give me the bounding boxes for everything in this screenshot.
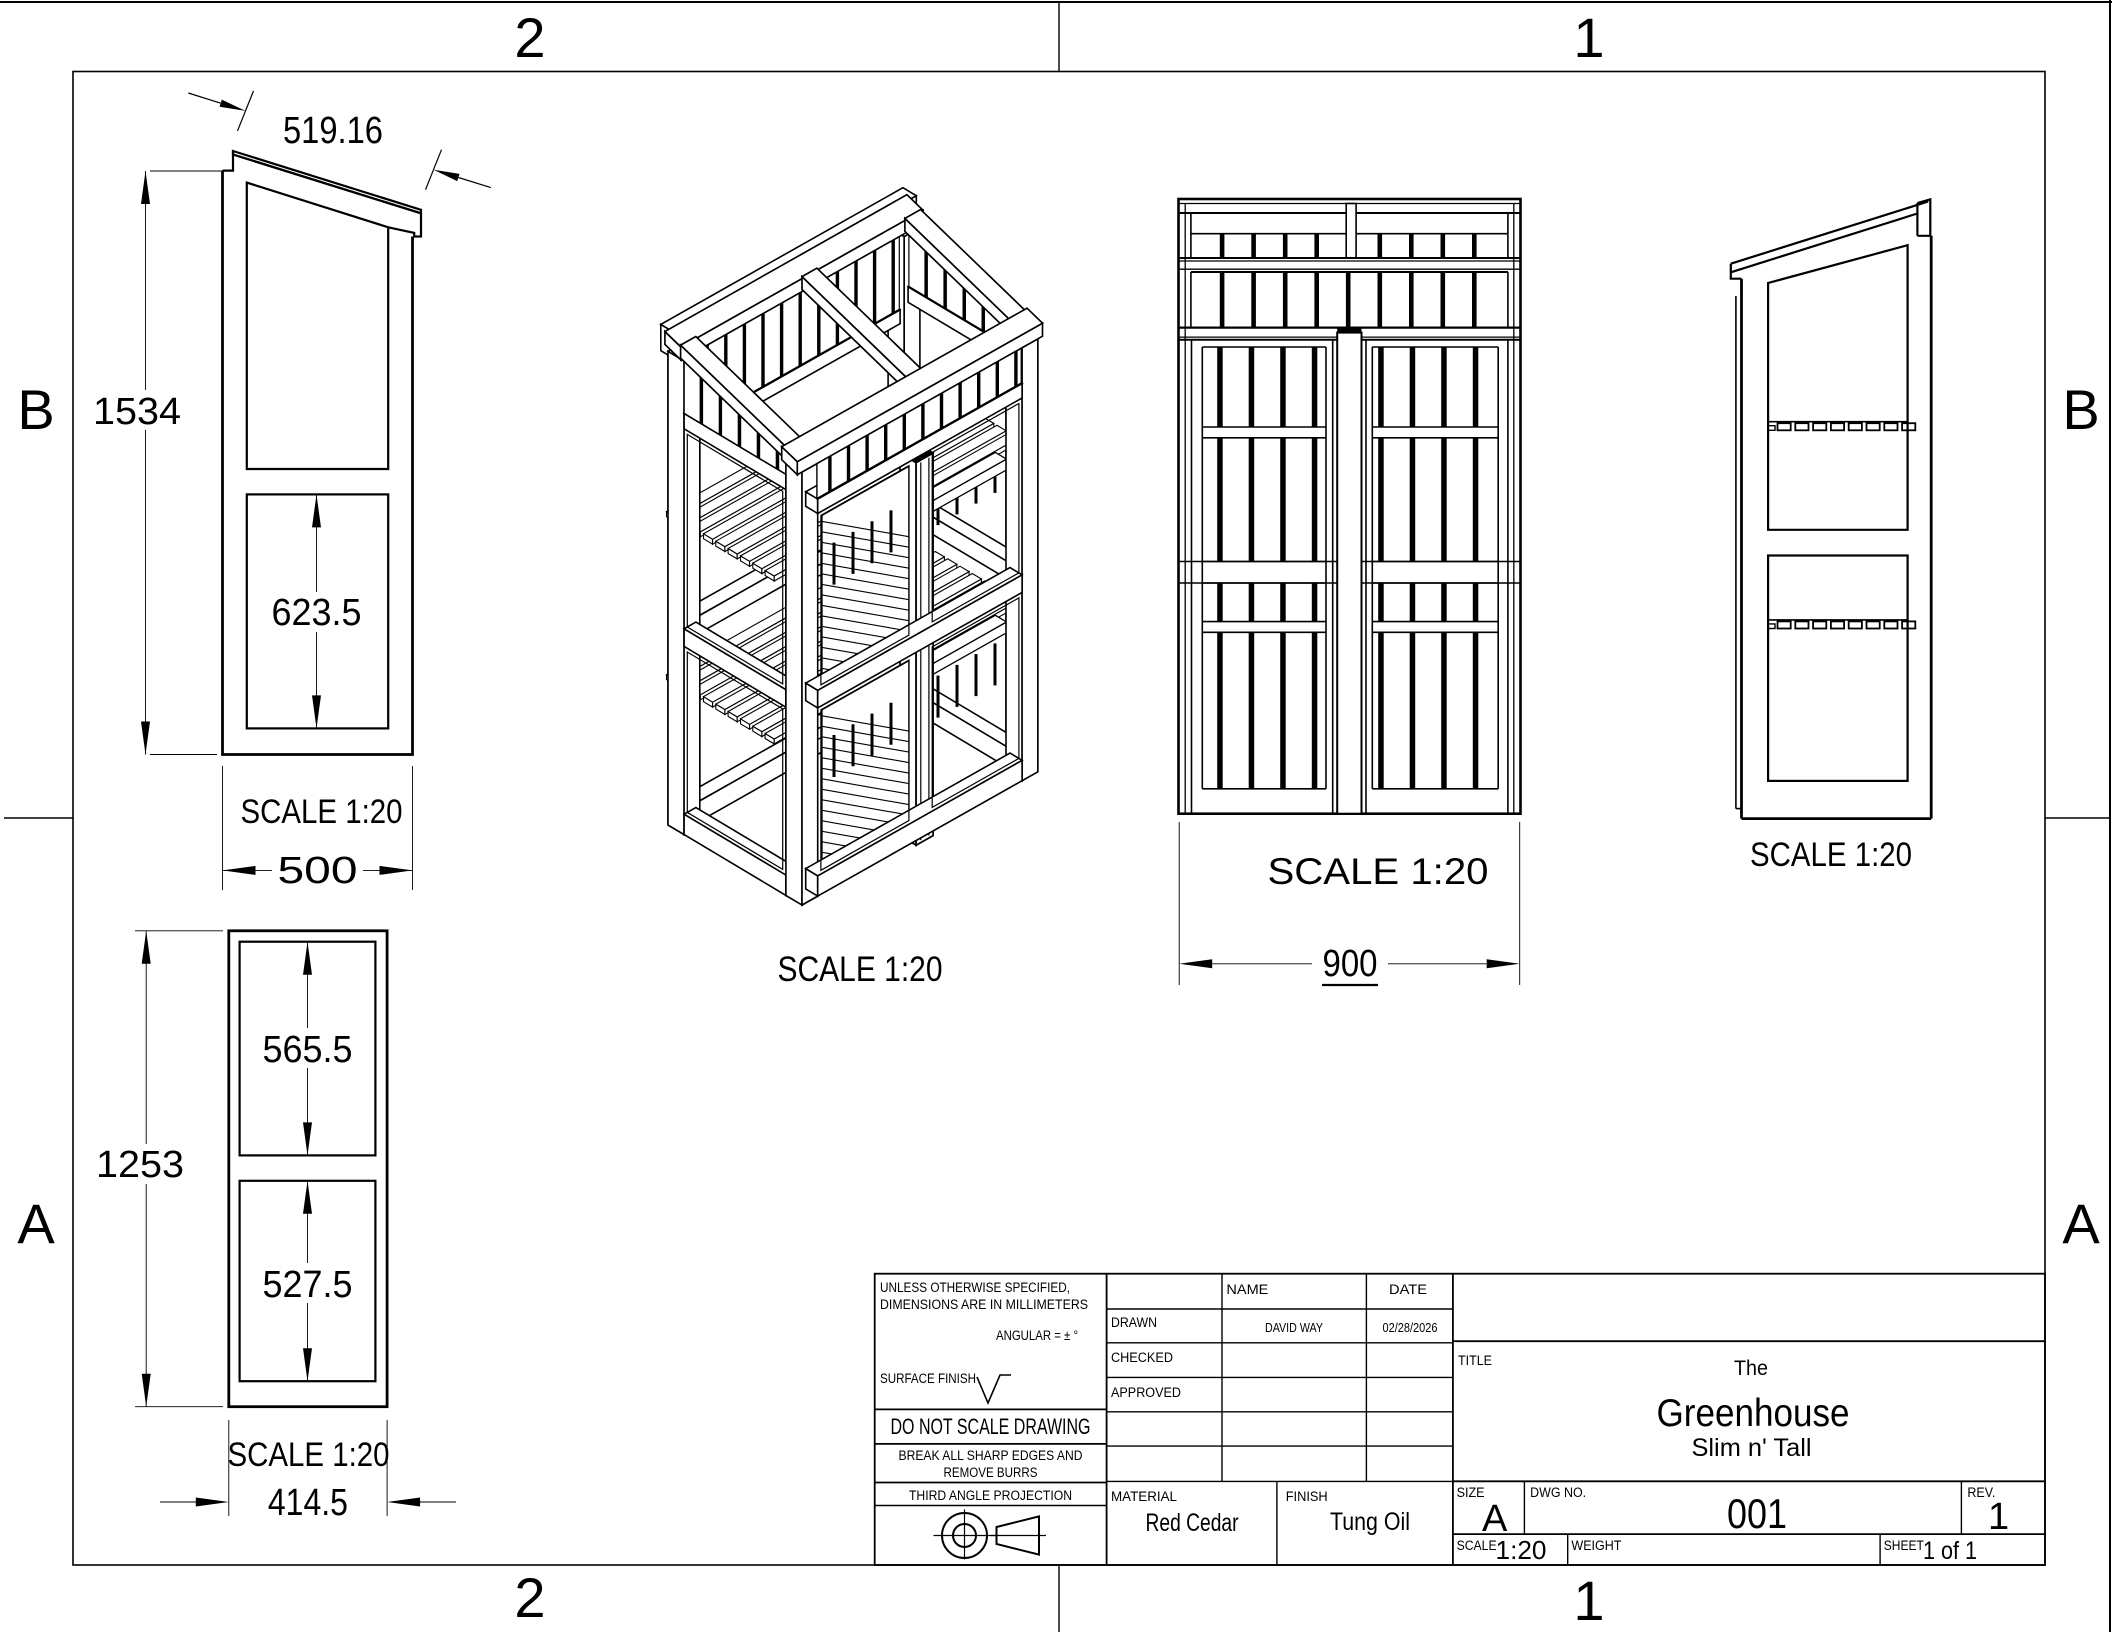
svg-text:SCALE 1:20: SCALE 1:20 bbox=[241, 793, 403, 831]
svg-text:1:20: 1:20 bbox=[1496, 1535, 1547, 1565]
svg-text:SCALE 1:20: SCALE 1:20 bbox=[1268, 851, 1489, 892]
svg-text:DATE: DATE bbox=[1389, 1282, 1427, 1297]
svg-text:565.5: 565.5 bbox=[263, 1029, 353, 1071]
svg-text:REMOVE BURRS: REMOVE BURRS bbox=[944, 1465, 1038, 1480]
svg-text:SCALE: SCALE bbox=[1457, 1538, 1497, 1553]
svg-text:TITLE: TITLE bbox=[1458, 1353, 1492, 1368]
svg-text:414.5: 414.5 bbox=[268, 1482, 348, 1524]
svg-text:Red Cedar: Red Cedar bbox=[1146, 1509, 1239, 1537]
svg-text:1: 1 bbox=[1573, 6, 1604, 69]
svg-text:SCALE 1:20: SCALE 1:20 bbox=[778, 950, 943, 989]
svg-text:THIRD ANGLE PROJECTION: THIRD ANGLE PROJECTION bbox=[909, 1488, 1072, 1503]
svg-text:UNLESS OTHERWISE SPECIFIED,: UNLESS OTHERWISE SPECIFIED, bbox=[880, 1280, 1070, 1295]
svg-text:DO NOT SCALE DRAWING: DO NOT SCALE DRAWING bbox=[891, 1414, 1091, 1439]
svg-text:900: 900 bbox=[1323, 943, 1378, 985]
svg-text:519.16: 519.16 bbox=[283, 110, 383, 152]
svg-text:1534: 1534 bbox=[93, 391, 181, 433]
svg-text:CHECKED: CHECKED bbox=[1111, 1350, 1173, 1365]
svg-text:APPROVED: APPROVED bbox=[1111, 1385, 1181, 1400]
svg-text:SIZE: SIZE bbox=[1457, 1485, 1485, 1500]
svg-text:FINISH: FINISH bbox=[1286, 1489, 1328, 1504]
svg-text:623.5: 623.5 bbox=[272, 592, 362, 634]
svg-text:001: 001 bbox=[1727, 1490, 1787, 1537]
svg-text:DWG NO.: DWG NO. bbox=[1530, 1485, 1586, 1500]
svg-text:DAVID WAY: DAVID WAY bbox=[1265, 1321, 1324, 1335]
svg-text:Slim n' Tall: Slim n' Tall bbox=[1692, 1434, 1812, 1462]
svg-text:2: 2 bbox=[514, 1566, 545, 1629]
svg-text:B: B bbox=[2062, 378, 2099, 441]
svg-text:2: 2 bbox=[514, 6, 545, 69]
svg-text:1253: 1253 bbox=[96, 1144, 184, 1186]
svg-text:02/28/2026: 02/28/2026 bbox=[1383, 1321, 1438, 1335]
svg-text:527.5: 527.5 bbox=[263, 1264, 353, 1306]
svg-text:B: B bbox=[17, 378, 54, 441]
svg-text:Tung Oil: Tung Oil bbox=[1330, 1508, 1410, 1536]
svg-text:SCALE 1:20: SCALE 1:20 bbox=[1750, 836, 1912, 874]
svg-text:DIMENSIONS ARE IN MILLIMETERS: DIMENSIONS ARE IN MILLIMETERS bbox=[880, 1297, 1088, 1312]
svg-text:Greenhouse: Greenhouse bbox=[1657, 1392, 1850, 1435]
svg-text:SCALE 1:20: SCALE 1:20 bbox=[228, 1436, 390, 1474]
svg-text:A: A bbox=[17, 1192, 55, 1255]
svg-text:The: The bbox=[1734, 1357, 1768, 1380]
svg-text:MATERIAL: MATERIAL bbox=[1111, 1489, 1177, 1504]
svg-text:DRAWN: DRAWN bbox=[1111, 1315, 1157, 1330]
svg-text:1: 1 bbox=[1573, 1569, 1604, 1632]
svg-text:NAME: NAME bbox=[1226, 1282, 1268, 1297]
svg-text:SHEET: SHEET bbox=[1884, 1538, 1924, 1553]
svg-text:WEIGHT: WEIGHT bbox=[1571, 1538, 1621, 1553]
svg-text:A: A bbox=[1482, 1498, 1508, 1540]
svg-text:SURFACE FINISH: SURFACE FINISH bbox=[880, 1371, 976, 1386]
svg-text:ANGULAR = ± °: ANGULAR = ± ° bbox=[996, 1328, 1078, 1343]
svg-text:BREAK ALL SHARP EDGES AND: BREAK ALL SHARP EDGES AND bbox=[899, 1448, 1083, 1463]
svg-text:1 of 1: 1 of 1 bbox=[1923, 1537, 1977, 1565]
svg-text:1: 1 bbox=[1988, 1496, 2009, 1538]
svg-text:500: 500 bbox=[278, 850, 358, 892]
svg-text:A: A bbox=[2062, 1192, 2100, 1255]
